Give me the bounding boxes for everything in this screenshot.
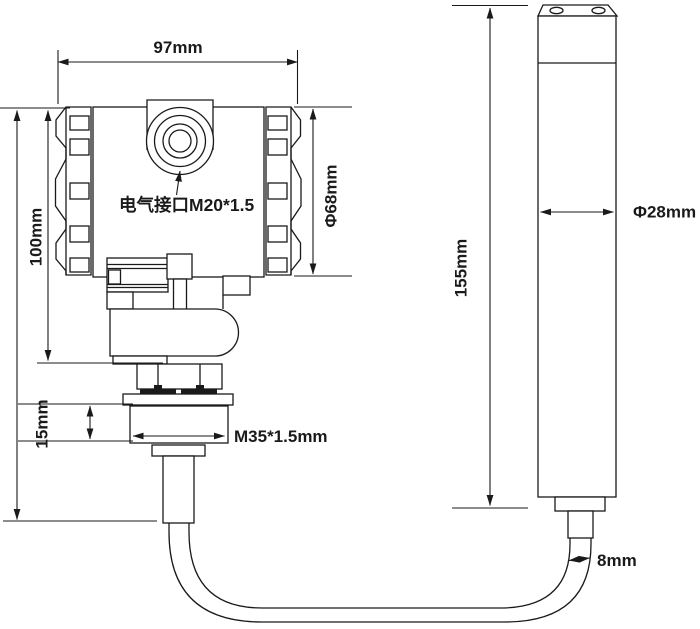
dimension-diameter-68: Φ68mm [294, 107, 352, 276]
electrical-port-label: 电气接口M20*1.5 [119, 195, 254, 215]
dimension-probe-length-155: 155mm [452, 6, 529, 509]
dimensional-drawing: 97mm 100mm Φ68mm 电气接口M20*1.5 15mm M35*1.… [0, 0, 700, 629]
width-dim-label: 97mm [153, 38, 202, 57]
sensor-probe [538, 5, 617, 538]
housing-diameter-label: Φ68mm [322, 164, 341, 227]
drawing-canvas: 97mm 100mm Φ68mm 电气接口M20*1.5 15mm M35*1.… [0, 0, 700, 629]
thread-height-label: 15mm [33, 399, 52, 448]
height-dim-label: 100mm [27, 208, 46, 267]
thread-spec-label: M35*1.5mm [234, 427, 328, 446]
dimension-cable-diameter-8: 8mm [569, 551, 637, 570]
probe-length-label: 155mm [452, 239, 471, 298]
probe-diameter-label: Φ28mm [633, 203, 696, 222]
connection-cable [169, 523, 591, 622]
cable-diameter-label: 8mm [597, 551, 637, 570]
dimension-width-97: 97mm [58, 38, 298, 104]
transmitter-housing [56, 100, 302, 277]
dimension-thread-height-15: 15mm [18, 399, 133, 448]
transmitter-neck-assembly [107, 254, 250, 523]
